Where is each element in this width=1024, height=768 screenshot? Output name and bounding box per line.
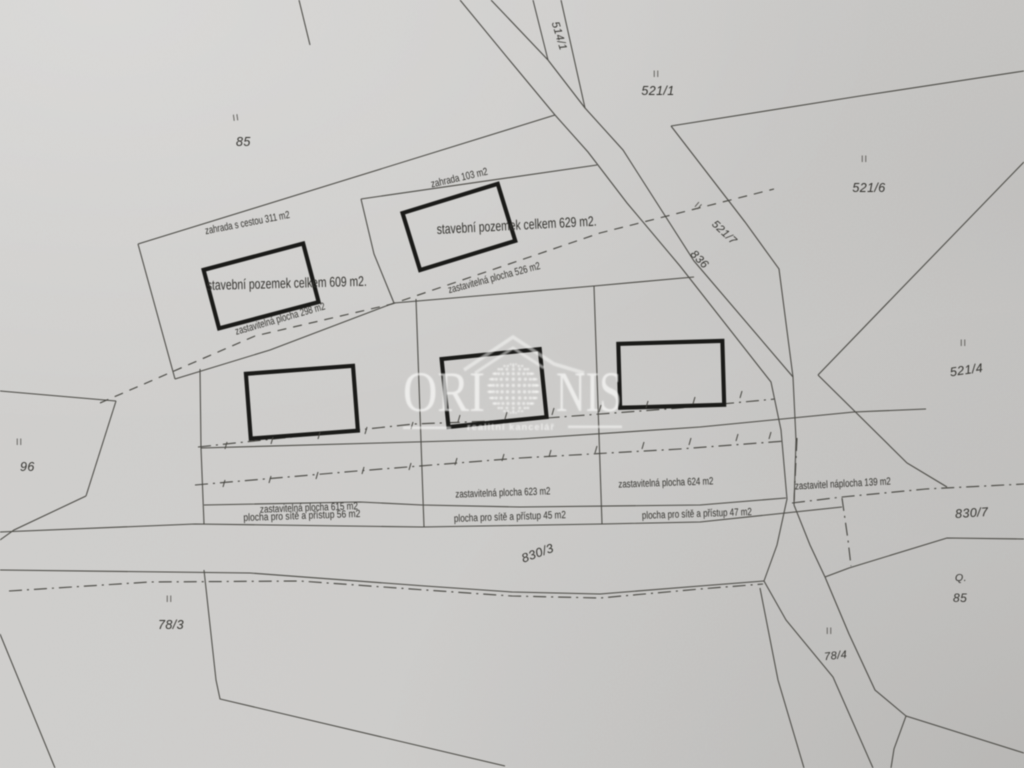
svg-text:ORI: ORI [403, 361, 485, 424]
svg-text:78/3: 78/3 [158, 618, 184, 632]
svg-text:realitní kancelář: realitní kancelář [467, 422, 555, 433]
svg-text:II: II [653, 69, 660, 79]
svg-text:II: II [861, 154, 868, 164]
svg-text:II: II [826, 626, 833, 636]
svg-text:II: II [232, 112, 240, 123]
svg-text:96: 96 [20, 460, 35, 474]
svg-text:II: II [166, 594, 173, 604]
svg-text:Q.: Q. [955, 572, 967, 584]
svg-text:521/6: 521/6 [852, 181, 885, 195]
svg-text:NIS: NIS [556, 361, 622, 424]
svg-text:85: 85 [953, 591, 967, 605]
svg-text:521/1: 521/1 [641, 84, 674, 98]
svg-text:II: II [16, 437, 23, 447]
svg-text:78/4: 78/4 [824, 649, 848, 663]
svg-text:85: 85 [236, 135, 251, 149]
svg-text:830/7: 830/7 [955, 505, 990, 521]
svg-text:II: II [960, 338, 967, 348]
